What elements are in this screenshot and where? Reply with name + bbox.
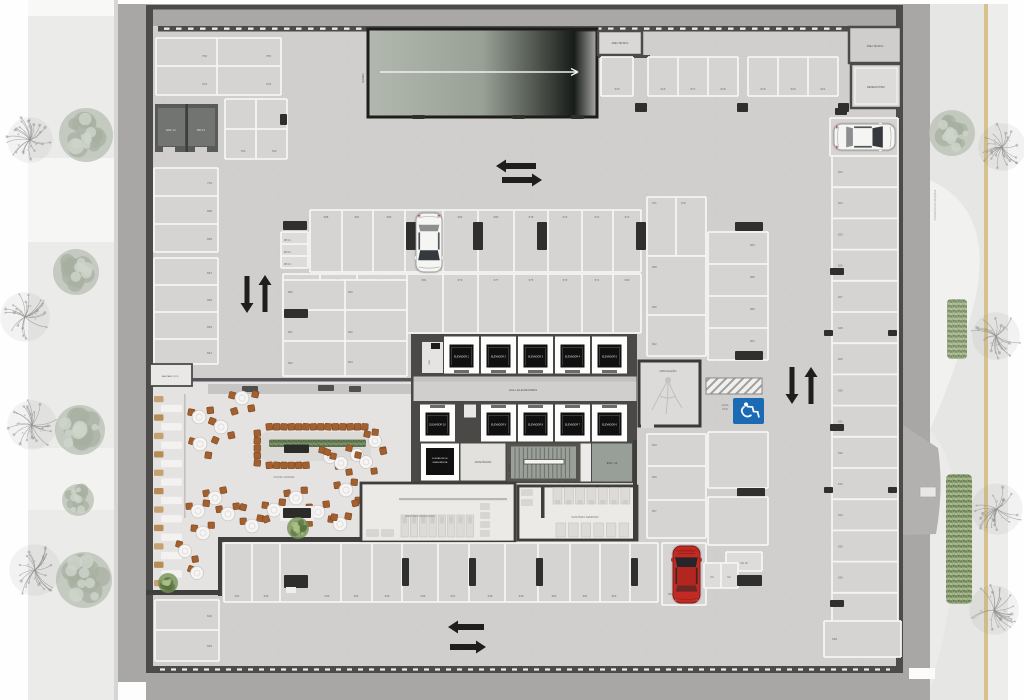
svg-text:616: 616 [660,87,665,91]
svg-text:ÁREA TÉCNICA: ÁREA TÉCNICA [867,45,884,48]
svg-text:705: 705 [266,54,271,58]
svg-text:M5 13: M5 13 [284,263,292,266]
svg-text:ELEVADOR 6: ELEVADOR 6 [602,423,618,426]
svg-text:HALL ELEVADORES: HALL ELEVADORES [509,388,537,392]
svg-text:ELEVADOR 5: ELEVADOR 5 [602,355,618,358]
svg-text:693: 693 [207,325,212,329]
svg-text:682: 682 [458,215,463,219]
svg-text:634: 634 [838,513,843,517]
svg-text:703: 703 [266,82,271,86]
svg-text:625: 625 [838,232,843,236]
svg-text:656: 656 [750,307,755,311]
svg-text:645: 645 [385,594,390,598]
svg-text:FOOD LOUNGE: FOOD LOUNGE [274,475,295,479]
svg-text:647: 647 [451,594,456,598]
svg-text:630: 630 [838,388,843,392]
svg-text:DESCE: DESCE [509,464,511,472]
svg-text:ELEVADOR 8: ELEVADOR 8 [528,423,544,426]
svg-text:ELEVADOR 2: ELEVADOR 2 [491,355,507,358]
svg-text:618: 618 [720,87,725,91]
svg-text:649: 649 [519,594,524,598]
svg-text:678: 678 [529,215,534,219]
svg-text:629: 629 [838,357,843,361]
svg-text:633: 633 [838,482,843,486]
svg-text:SANITÁRIO PCD: SANITÁRIO PCD [161,375,178,378]
svg-text:677: 677 [494,278,499,282]
svg-text:ELEVADOR 7: ELEVADOR 7 [565,423,581,426]
svg-text:695: 695 [207,298,212,302]
svg-text:M5 11: M5 11 [284,239,291,242]
svg-text:666: 666 [652,305,657,309]
svg-text:691: 691 [207,351,212,355]
svg-text:628: 628 [838,326,843,330]
svg-text:696: 696 [207,237,212,241]
svg-text:642: 642 [264,594,269,598]
svg-text:627: 627 [838,295,843,299]
svg-text:710: 710 [207,181,212,185]
svg-text:638: 638 [832,637,837,641]
svg-text:640: 640 [207,614,212,618]
svg-text:657: 657 [652,509,657,513]
svg-text:694: 694 [348,360,353,364]
svg-text:ELEVADOR 3: ELEVADOR 3 [528,355,544,358]
svg-text:686: 686 [387,215,392,219]
svg-text:672: 672 [625,215,630,219]
svg-text:631: 631 [838,420,843,424]
svg-text:626: 626 [838,264,843,268]
svg-text:692: 692 [348,330,353,334]
svg-text:617: 617 [690,87,695,91]
svg-text:ÁREA TÉCNICA: ÁREA TÉCNICA [612,42,629,45]
svg-text:619: 619 [760,87,765,91]
svg-text:650: 650 [552,594,557,598]
svg-text:693: 693 [288,361,293,365]
svg-text:639: 639 [207,644,212,648]
svg-text:689: 689 [288,290,293,294]
svg-text:636: 636 [838,576,843,580]
svg-text:648: 648 [488,594,493,598]
svg-text:RESERVATÓRIO: RESERVATÓRIO [867,86,885,89]
svg-text:670: 670 [681,201,686,205]
svg-text:ELEVADOR DE: ELEVADOR DE [432,457,448,460]
svg-text:ANTECÂMARA: ANTECÂMARA [475,461,492,464]
svg-text:680: 680 [494,215,499,219]
svg-text:643: 643 [325,594,330,598]
svg-text:M5 12: M5 12 [284,251,292,254]
svg-text:704: 704 [202,82,207,86]
svg-text:698: 698 [207,209,212,213]
svg-text:688: 688 [324,215,329,219]
svg-text:701: 701 [240,149,245,153]
svg-text:641: 641 [235,594,240,598]
svg-text:658: 658 [750,275,755,279]
svg-text:PCD: PCD [722,408,727,411]
svg-text:623: 623 [838,170,843,174]
svg-text:660: 660 [750,243,755,247]
svg-text:652: 652 [612,594,617,598]
svg-text:624: 624 [838,201,843,205]
svg-text:615: 615 [614,87,619,91]
svg-text:ESC. 11: ESC. 11 [166,128,176,132]
svg-text:702: 702 [271,149,276,153]
svg-text:ELEVADOR 9: ELEVADOR 9 [491,423,507,426]
svg-text:651: 651 [583,594,588,598]
svg-text:M1 18: M1 18 [741,562,749,565]
svg-text:668: 668 [652,265,657,269]
svg-text:681: 681 [355,215,360,219]
svg-text:SANITÁRIO FEMININO: SANITÁRIO FEMININO [571,515,598,519]
svg-text:675: 675 [529,278,534,282]
svg-text:654: 654 [750,339,755,343]
svg-text:671: 671 [652,201,657,205]
svg-text:635: 635 [838,544,843,548]
svg-text:663: 663 [652,443,657,447]
svg-text:674: 674 [595,215,600,219]
svg-text:706: 706 [202,54,207,58]
svg-text:SANITÁRIO MASCULINO: SANITÁRIO MASCULINO [405,514,435,518]
svg-text:676: 676 [563,215,568,219]
svg-text:ESC. 14: ESC. 14 [607,461,618,465]
svg-text:659: 659 [652,475,657,479]
svg-text:BIC 11: BIC 11 [197,128,205,132]
svg-text:VAGA: VAGA [722,404,729,407]
svg-text:691: 691 [288,330,293,334]
svg-text:ELEVADOR 10: ELEVADOR 10 [429,423,446,426]
svg-text:646: 646 [421,594,426,598]
svg-text:PROJEÇÃO DO MARQUISE: PROJEÇÃO DO MARQUISE [934,189,937,220]
svg-text:621: 621 [820,87,825,91]
svg-text:ELEVADOR 4: ELEVADOR 4 [565,355,581,358]
svg-text:679: 679 [458,278,463,282]
svg-text:697: 697 [207,271,212,275]
svg-text:ELEVADOR 1: ELEVADOR 1 [454,355,470,358]
svg-text:681: 681 [422,278,427,282]
svg-text:620: 620 [790,87,795,91]
svg-text:690: 690 [348,290,353,294]
svg-text:662: 662 [652,342,657,346]
svg-text:673: 673 [563,278,568,282]
svg-text:EMERGÊNCIA: EMERGÊNCIA [433,461,448,464]
svg-text:DML: DML [429,359,431,364]
svg-text:669: 669 [625,278,630,282]
svg-text:632: 632 [838,451,843,455]
svg-text:644: 644 [354,594,359,598]
svg-text:671: 671 [595,278,600,282]
svg-text:RAMPA: RAMPA [361,73,365,82]
